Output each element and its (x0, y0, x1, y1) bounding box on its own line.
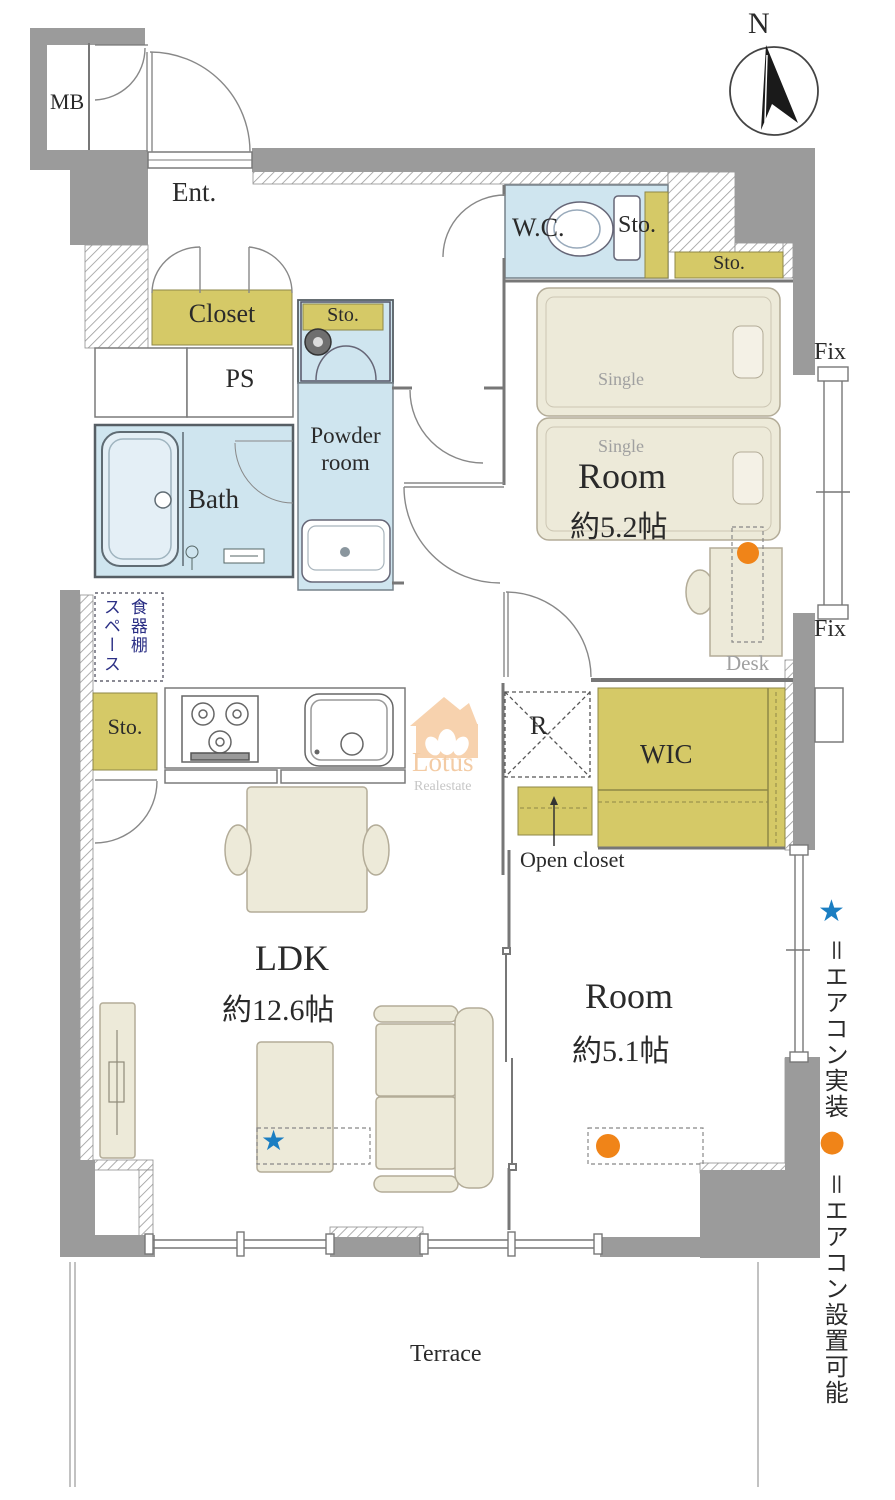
hall-door-arc (410, 390, 483, 463)
legend-star-text: ＝エアコン実装 (820, 938, 845, 1120)
sofa-backrest (455, 1008, 493, 1188)
floor-plan: MB Ent. Closet Sto. PS Bath Powder room … (0, 0, 895, 1500)
terrace-label: Terrace (410, 1342, 482, 1367)
desk-label: Desk (726, 652, 769, 674)
bedroom2-sliding-door (503, 948, 516, 1170)
ldk-door-arc (404, 487, 500, 583)
fix-window-east (816, 367, 850, 619)
sofa-seat-1 (376, 1024, 456, 1096)
closet-label: Closet (152, 300, 292, 327)
refrigerator-label: R (530, 712, 547, 739)
powder-room-label-2: room (298, 451, 393, 475)
pillow-2 (733, 452, 763, 504)
bedroom2-name: Room (585, 978, 673, 1016)
entrance-door-arc (150, 52, 250, 152)
washbasin (302, 520, 390, 582)
bath-label: Bath (188, 485, 239, 513)
ac-possible-dot-bedroom1 (737, 542, 759, 564)
fix-window-bottom-label: Fix (814, 617, 846, 642)
legend-dot-text: ＝エアコン設置可能 (820, 1172, 845, 1406)
open-closet-area (518, 787, 592, 835)
bathtub (102, 432, 178, 566)
stove (182, 696, 258, 762)
open-closet-label: Open closet (520, 848, 624, 871)
desk-rect (710, 548, 782, 656)
mb-label: MB (50, 90, 84, 113)
legend-dot-icon: ● (819, 1126, 845, 1158)
compass-icon (730, 45, 818, 135)
ac-outdoor-unit (815, 688, 843, 742)
bedroom2-east-window (786, 845, 810, 1062)
sofa-seat-2 (376, 1097, 456, 1169)
wc-label: W.C. (512, 214, 565, 241)
ldk-size: 約12.6帖 (222, 995, 335, 1027)
sofa-arm-top (374, 1006, 458, 1022)
fix-window-top-label: Fix (814, 340, 846, 365)
ldk-name: LDK (255, 940, 329, 978)
closet-door-arc-left (152, 247, 200, 293)
watermark-subtitle: Realestate (414, 780, 472, 795)
ac-installed-star-icon: ★ (261, 1126, 286, 1155)
sofa-arm-bottom (374, 1176, 458, 1192)
bedroom1-name: Room (578, 458, 666, 496)
closet-door-arc-right (249, 247, 292, 293)
bedroom1-size: 約5.2帖 (570, 512, 668, 544)
dining-table (247, 787, 367, 912)
compass-north-label: N (748, 8, 770, 40)
refrigerator-space (505, 692, 590, 777)
wc-door-arc (443, 195, 505, 257)
wic-label: WIC (640, 740, 692, 768)
laundry-storage-label: Sto. (303, 305, 383, 326)
bedroom2-ac (588, 1128, 703, 1164)
bed1-label: Single (598, 370, 644, 389)
kitchen-storage-door-arc (95, 781, 157, 843)
ps-label: PS (187, 365, 293, 392)
ldk-furniture (100, 787, 493, 1192)
dining-chair-right (363, 825, 389, 875)
kitchen-sink (305, 694, 393, 766)
bedroom2-size: 約5.1帖 (572, 1036, 670, 1068)
bedroom1-storage-label: Sto. (675, 253, 783, 274)
kitchen-storage-label: Sto. (93, 715, 157, 738)
watermark-name: Lotus (412, 748, 474, 776)
ac-possible-dot-bedroom2 (596, 1134, 620, 1158)
wc-storage-label: Sto. (618, 213, 656, 238)
terrace-boundary (70, 1262, 758, 1487)
powder-room-label-1: Powder (298, 424, 393, 448)
bedroom1-door-arc (506, 592, 591, 677)
bed2-label: Single (598, 437, 644, 456)
entrance-label: Ent. (172, 178, 216, 206)
mb-door-arc (95, 48, 145, 100)
cupboard-space-label-2: スペース (101, 598, 119, 674)
dining-chair-left (225, 825, 251, 875)
legend-star-icon: ★ (818, 896, 845, 928)
pillow-1 (733, 326, 763, 378)
cupboard-space-label-1: 食器棚 (128, 598, 146, 655)
